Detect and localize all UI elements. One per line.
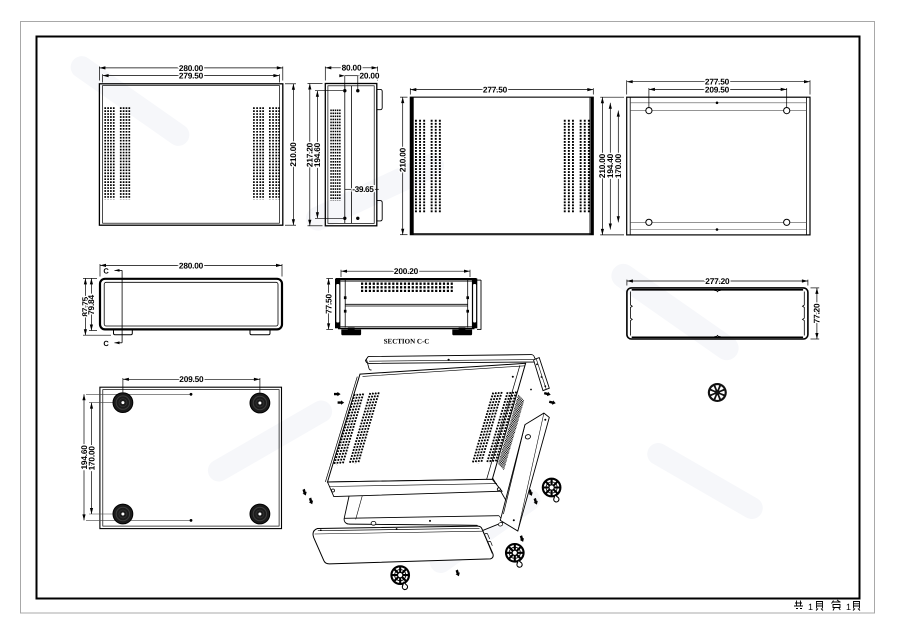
svg-text:210.00: 210.00 (288, 142, 298, 167)
svg-text:79.84: 79.84 (86, 295, 96, 315)
svg-text:77.20: 77.20 (812, 303, 822, 323)
svg-text:277.50: 277.50 (483, 85, 508, 95)
svg-text:209.50: 209.50 (705, 84, 730, 94)
svg-text:277.20: 277.20 (705, 276, 730, 286)
svg-text:1: 1 (808, 602, 813, 612)
svg-text:20.00: 20.00 (360, 71, 380, 81)
svg-text:-39.65: -39.65 (352, 184, 374, 194)
svg-text:194.60: 194.60 (312, 142, 322, 167)
svg-text:170.00: 170.00 (613, 153, 623, 178)
svg-text:170.00: 170.00 (86, 446, 96, 471)
svg-text:SECTION C-C: SECTION C-C (384, 338, 430, 346)
svg-text:C: C (103, 339, 109, 348)
svg-text:C: C (103, 266, 109, 275)
svg-text:1: 1 (846, 602, 851, 612)
svg-text:279.50: 279.50 (179, 71, 204, 81)
svg-text:210.00: 210.00 (398, 147, 408, 172)
svg-text:209.50: 209.50 (179, 374, 204, 384)
svg-text:77.50: 77.50 (323, 294, 333, 314)
svg-text:200.20: 200.20 (394, 266, 419, 276)
svg-text:280.00: 280.00 (179, 260, 204, 270)
